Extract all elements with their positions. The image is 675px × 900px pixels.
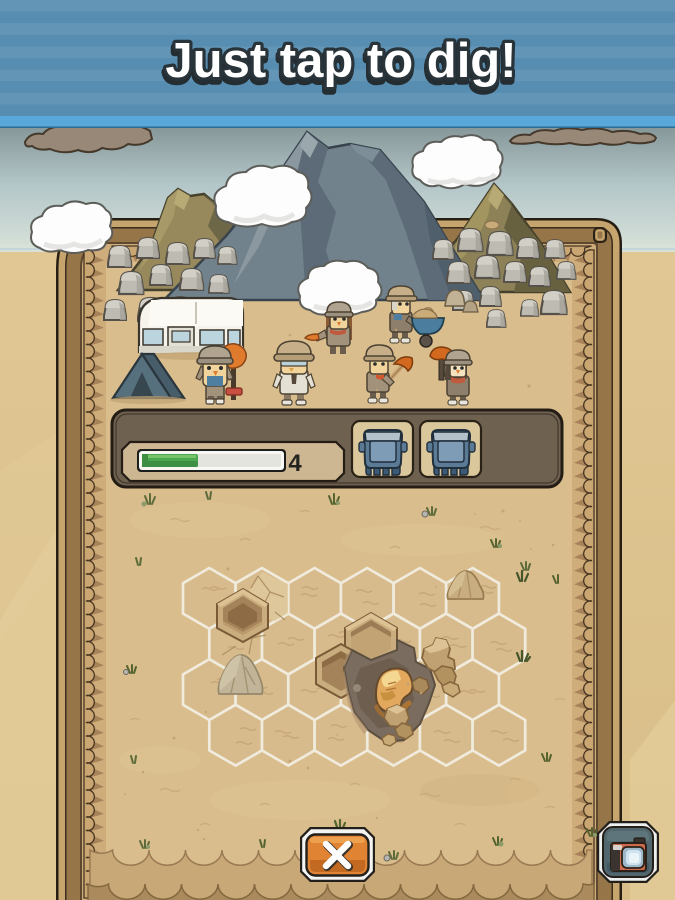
svg-text:4: 4 (288, 450, 302, 477)
svg-text:Just tap to dig!: Just tap to dig! (165, 34, 516, 88)
